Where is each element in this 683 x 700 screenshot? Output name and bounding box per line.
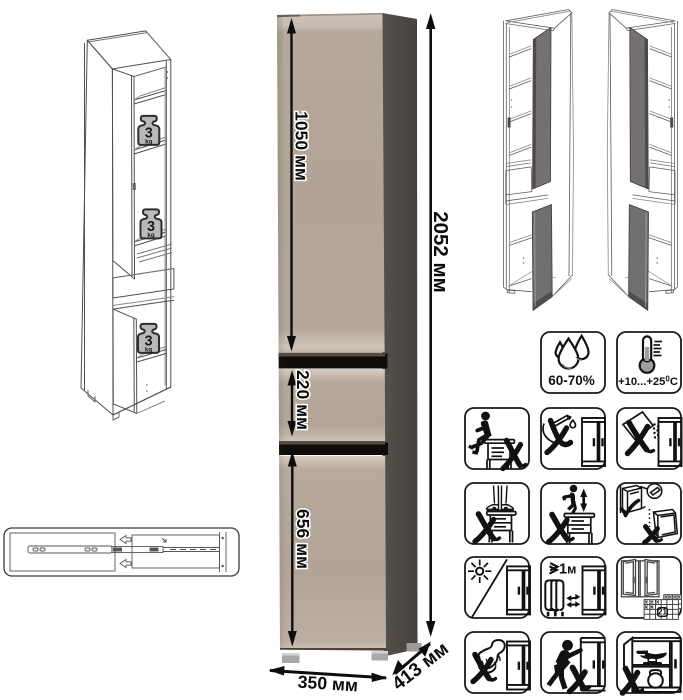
svg-text:2052 мм: 2052 мм: [429, 211, 452, 293]
svg-text:220 мм: 220 мм: [293, 370, 313, 430]
svg-text:1050 мм: 1050 мм: [291, 111, 311, 181]
svg-text:21: 21: [658, 608, 667, 617]
svg-text:350 мм: 350 мм: [297, 672, 358, 696]
svg-text:60-70%: 60-70%: [548, 373, 595, 388]
svg-text:1м: 1м: [559, 561, 576, 577]
svg-text:kg: kg: [145, 139, 153, 146]
svg-text:656 мм: 656 мм: [293, 509, 313, 569]
svg-text:+10...+250C: +10...+250C: [618, 375, 678, 388]
